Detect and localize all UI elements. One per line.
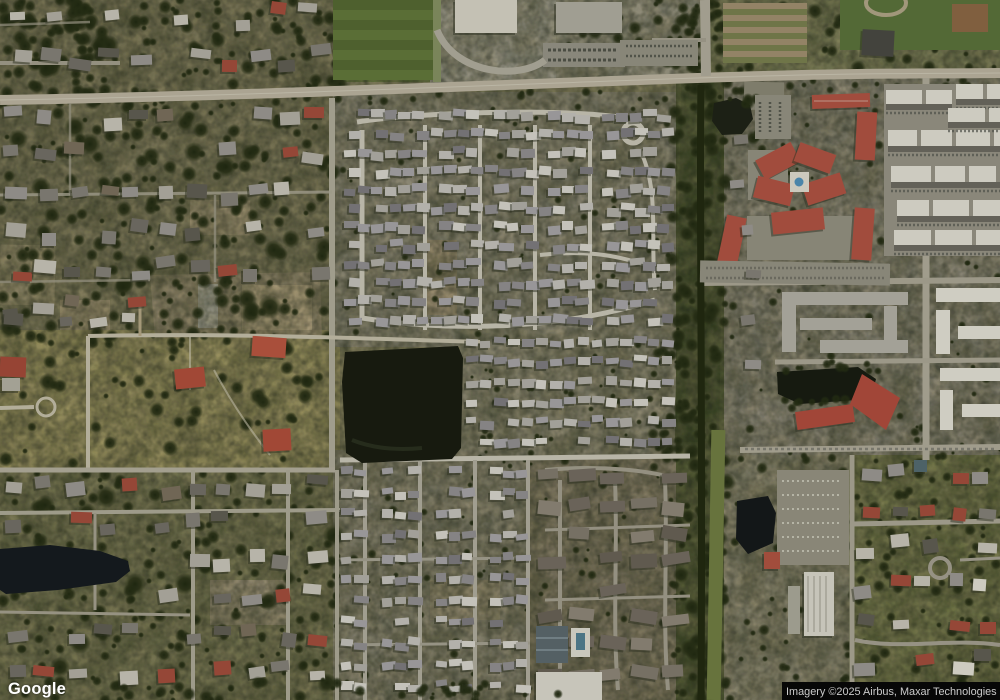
- svg-text:Imagery ©2025 Airbus, Maxar Te: Imagery ©2025 Airbus, Maxar Technologies: [786, 686, 997, 698]
- svg-text:Google: Google: [8, 680, 66, 698]
